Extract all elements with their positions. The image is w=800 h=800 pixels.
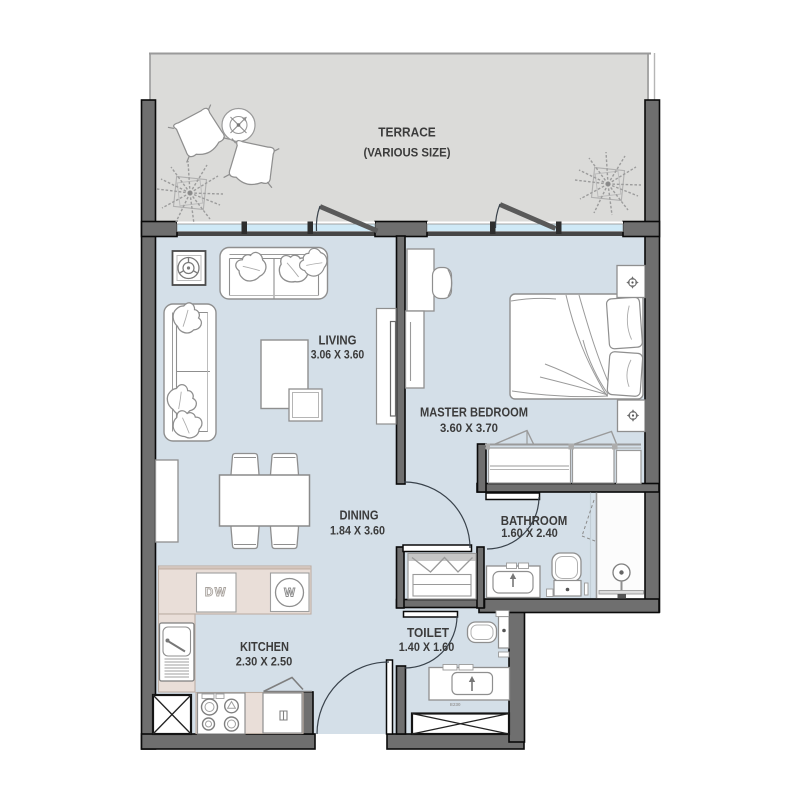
svg-text:1.40 X 1.60: 1.40 X 1.60 bbox=[399, 640, 455, 654]
svg-text:TERRACE: TERRACE bbox=[378, 125, 436, 140]
svg-text:3.60 X 3.70: 3.60 X 3.70 bbox=[440, 421, 498, 435]
svg-text:DW: DW bbox=[205, 587, 227, 599]
svg-text:TOILET: TOILET bbox=[407, 626, 449, 640]
svg-text:W: W bbox=[284, 588, 295, 600]
svg-text:KITCHEN: KITCHEN bbox=[240, 640, 289, 654]
svg-text:3.06 X 3.60: 3.06 X 3.60 bbox=[311, 348, 365, 362]
svg-text:2.30 X 2.50: 2.30 X 2.50 bbox=[236, 655, 293, 669]
svg-text:DINING: DINING bbox=[340, 509, 379, 523]
svg-text:1.60 X 2.40: 1.60 X 2.40 bbox=[501, 526, 558, 540]
svg-text:E230: E230 bbox=[450, 702, 461, 707]
svg-text:1.84 X 3.60: 1.84 X 3.60 bbox=[330, 524, 385, 538]
svg-text:(VARIOUS SIZE): (VARIOUS SIZE) bbox=[364, 146, 451, 160]
svg-text:LIVING: LIVING bbox=[319, 334, 357, 348]
svg-text:MASTER BEDROOM: MASTER BEDROOM bbox=[420, 406, 528, 420]
